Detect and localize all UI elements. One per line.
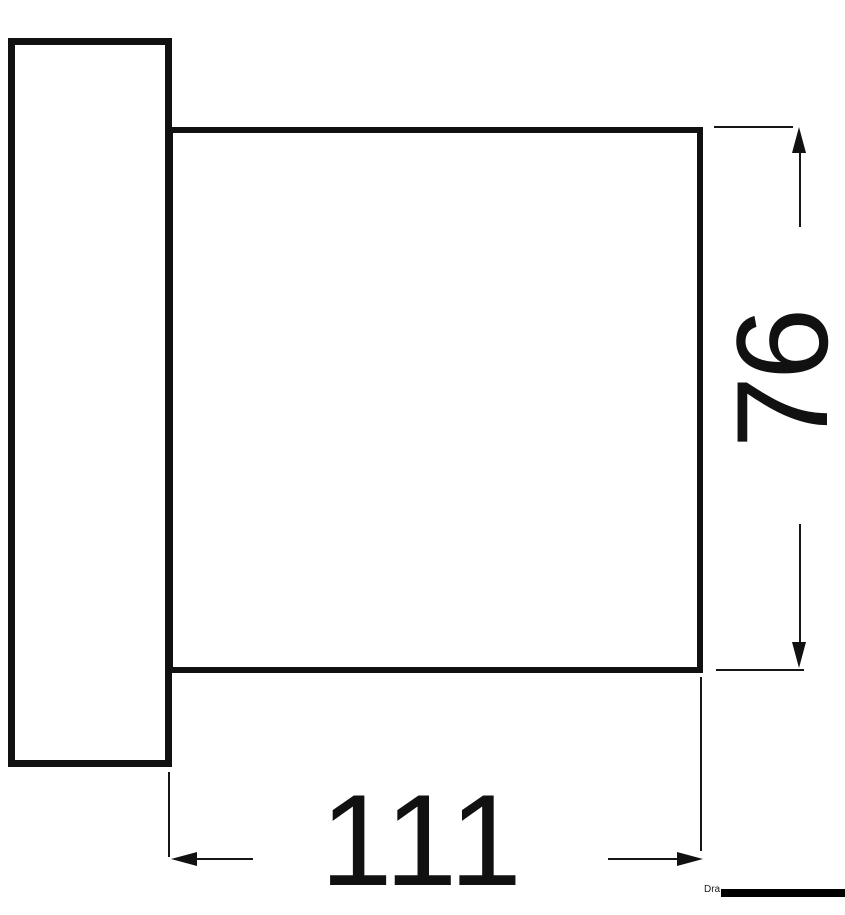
height-dim-extension-bottom: [716, 669, 804, 671]
part-body-outline: [167, 127, 703, 673]
watermark-text: Dra: [704, 884, 720, 895]
height-dim-line-bottom: [799, 524, 801, 642]
height-dim-label: 76: [707, 220, 845, 540]
width-dim-line-right: [608, 858, 678, 860]
width-dim-extension-right: [700, 677, 702, 851]
part-flange-outline: [8, 38, 172, 767]
height-dim-arrowhead-down-icon: [792, 642, 806, 668]
height-dim-arrowhead-up-icon: [792, 127, 806, 153]
drawing-canvas: 76 111 Dra: [0, 0, 845, 900]
width-dim-line-left: [196, 858, 253, 860]
width-dim-arrowhead-right-icon: [677, 852, 703, 866]
width-dim-arrowhead-left-icon: [171, 852, 197, 866]
height-dim-line-top: [799, 152, 801, 227]
width-dim-extension-left: [168, 772, 170, 857]
watermark-redaction-bar: [721, 889, 845, 897]
width-dim-label: 111: [262, 765, 582, 915]
height-dim-extension-top: [714, 126, 793, 128]
